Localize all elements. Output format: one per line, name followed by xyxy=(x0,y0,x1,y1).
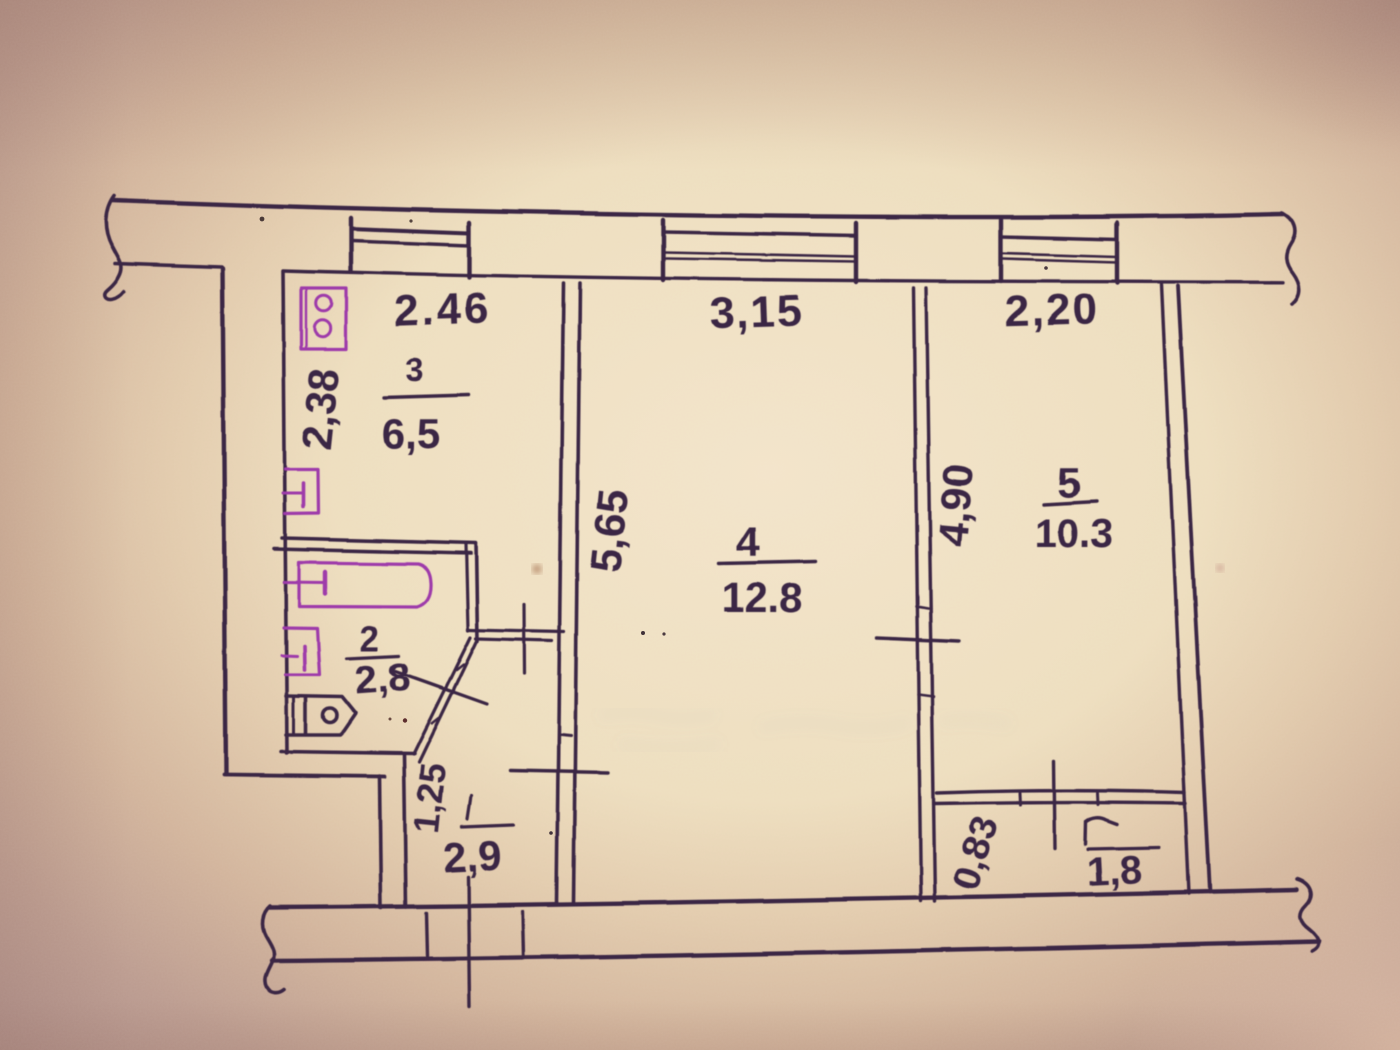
svg-text:6,5: 6,5 xyxy=(382,410,440,457)
svg-text:5,65: 5,65 xyxy=(582,487,638,575)
svg-text:2: 2 xyxy=(359,618,379,659)
svg-text:12.8: 12.8 xyxy=(721,574,803,621)
svg-text:5: 5 xyxy=(1057,459,1080,506)
svg-text:10.3: 10.3 xyxy=(1035,512,1113,556)
svg-text:4,90: 4,90 xyxy=(929,462,983,548)
svg-text:2.46: 2.46 xyxy=(393,283,492,335)
svg-text:3,15: 3,15 xyxy=(709,286,804,338)
svg-text:3: 3 xyxy=(406,352,424,388)
svg-text:2,9: 2,9 xyxy=(442,832,503,882)
svg-text:1,25: 1,25 xyxy=(405,761,453,835)
svg-text:4: 4 xyxy=(736,518,760,565)
svg-text:2,8: 2,8 xyxy=(354,655,413,703)
svg-text:2,20: 2,20 xyxy=(1004,285,1099,336)
svg-text:2,38: 2,38 xyxy=(293,366,348,452)
svg-text:1,8: 1,8 xyxy=(1085,848,1143,895)
